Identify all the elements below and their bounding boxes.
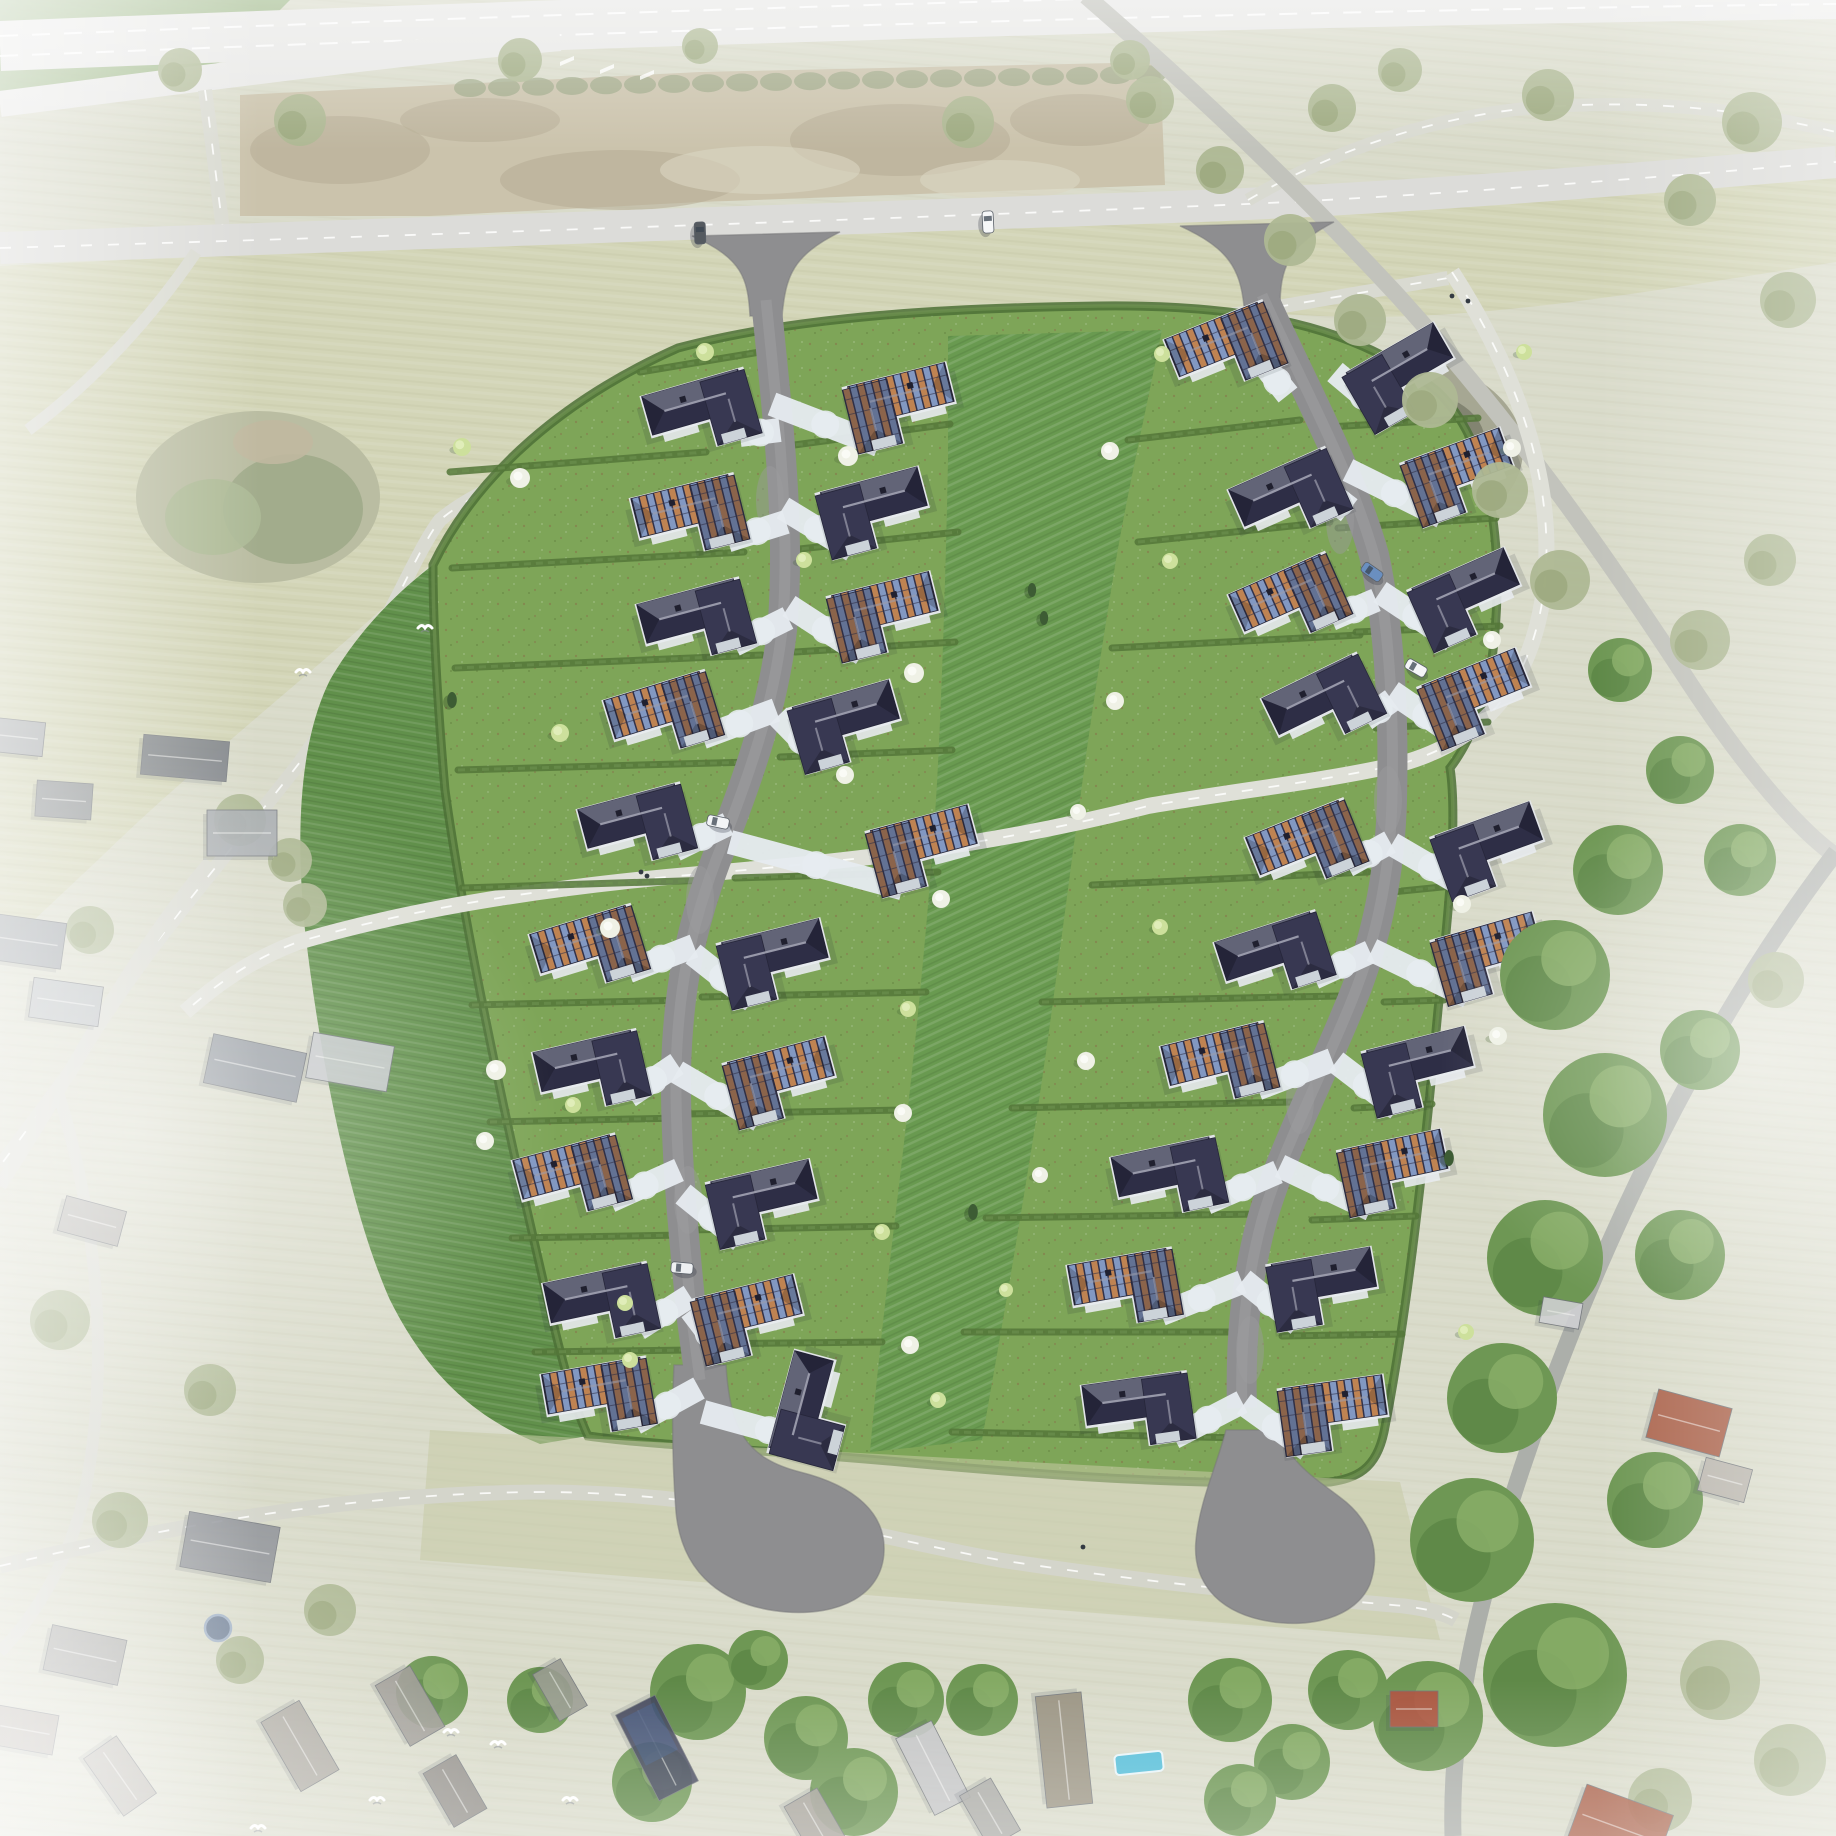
- tree-flowering-highlight: [935, 893, 943, 901]
- tree-flowering-highlight: [1104, 445, 1112, 453]
- vehicle-windshield: [696, 227, 704, 232]
- driveway-pad: [811, 410, 839, 438]
- fade-top-edge: [0, 0, 1836, 150]
- pedestrian: [1466, 299, 1471, 304]
- tree-flowering-highlight: [897, 1107, 905, 1115]
- tree-cypress: [447, 692, 457, 708]
- tree-birch-highlight: [624, 1354, 632, 1362]
- bird: [296, 670, 310, 673]
- tree-cypress: [1444, 1150, 1454, 1166]
- tree-birch-highlight: [455, 440, 464, 449]
- chimney: [581, 1286, 588, 1293]
- asphalt-wear-patch: [1236, 1316, 1264, 1384]
- tree-flowering-highlight: [1080, 1055, 1088, 1063]
- tree-washed-dark: [1476, 480, 1507, 511]
- tree-cypress: [1028, 583, 1036, 597]
- driveway-pad: [725, 710, 753, 738]
- chimney: [1105, 1269, 1112, 1276]
- tree-flowering-highlight: [1109, 695, 1117, 703]
- tree-birch-highlight: [698, 345, 707, 354]
- tree-birch-highlight: [1154, 921, 1162, 929]
- tree-flowering-highlight: [604, 922, 613, 931]
- tree-cypress: [968, 1204, 978, 1220]
- chimney: [1119, 1391, 1126, 1398]
- vehicle-windshield: [984, 216, 992, 221]
- pedestrian: [1450, 294, 1455, 299]
- tree-birch-highlight: [1001, 1285, 1008, 1292]
- chimney: [1401, 1147, 1408, 1154]
- tree-flowering-highlight: [1506, 442, 1514, 450]
- tree-birch-highlight: [876, 1226, 884, 1234]
- tree-birch-highlight: [1518, 346, 1526, 354]
- driveway-pad: [802, 851, 830, 879]
- pedestrian: [645, 874, 650, 879]
- driveway-pad: [1188, 1284, 1216, 1312]
- tree-cypress: [1040, 611, 1048, 625]
- tree-flowering-highlight: [839, 769, 847, 777]
- tree-flowering-highlight: [1035, 1170, 1042, 1177]
- tree-flowering-highlight: [514, 472, 523, 481]
- vehicle-body: [982, 211, 994, 234]
- chimney: [1149, 1160, 1156, 1167]
- asphalt-wear-patch: [686, 866, 714, 934]
- chimney: [579, 1378, 586, 1385]
- tree-birch-highlight: [619, 1297, 627, 1305]
- tree-washed-dark: [1338, 311, 1367, 340]
- vehicle-windshield: [676, 1263, 682, 1271]
- tree-birch-highlight: [1460, 1326, 1468, 1334]
- tree-birch-highlight: [902, 1003, 910, 1011]
- tree-washed-dark: [1535, 570, 1568, 603]
- tree-washed-dark: [1406, 390, 1437, 421]
- screenshot-root: [0, 0, 1836, 1836]
- driveway-pad: [1311, 1174, 1339, 1202]
- tree-billow-light: [1488, 1354, 1543, 1409]
- tree-birch-highlight: [567, 1099, 575, 1107]
- pedestrian: [639, 870, 644, 875]
- tree-flowering-highlight: [1486, 634, 1494, 642]
- tree-flowering-highlight: [1456, 898, 1464, 906]
- tree-birch-highlight: [1156, 348, 1164, 356]
- tree-flowering-highlight: [904, 1339, 912, 1347]
- site-plan-aerial-image: [0, 0, 1836, 1836]
- tree-flowering-highlight: [908, 667, 917, 676]
- tree-washed-dark: [1200, 162, 1226, 188]
- driveway-pad: [1228, 1173, 1256, 1201]
- asphalt-wear-patch: [1374, 766, 1402, 834]
- driveway-pad: [631, 1171, 659, 1199]
- driveway-pad: [1281, 1060, 1309, 1088]
- tree-birch-highlight: [798, 554, 806, 562]
- tree-birch-highlight: [553, 726, 562, 735]
- bird: [418, 626, 432, 629]
- tree-birch-highlight: [1164, 555, 1172, 563]
- vehicle-body: [694, 222, 706, 244]
- driveway-pad: [1406, 959, 1434, 987]
- tree-billow-light: [751, 1636, 781, 1666]
- chimney: [1330, 1264, 1337, 1271]
- tree-flowering-highlight: [842, 450, 851, 459]
- pedestrian: [1081, 1545, 1086, 1550]
- tree-washed-dark: [1268, 231, 1297, 260]
- chimney: [1342, 1391, 1349, 1398]
- tree-billow-light: [1457, 1490, 1519, 1552]
- vehicle-body: [671, 1262, 694, 1275]
- tree-birch-highlight: [932, 1394, 940, 1402]
- driveway-pad: [1194, 1406, 1222, 1434]
- tree-flowering-highlight: [1073, 807, 1080, 814]
